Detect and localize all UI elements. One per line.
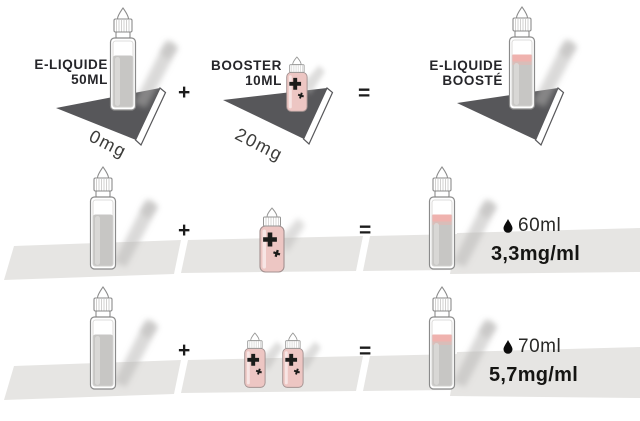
- mix2-volume: 70ml: [503, 336, 561, 358]
- result-label-line1: E-LIQUIDE: [413, 58, 503, 73]
- droplet-icon: [503, 219, 513, 233]
- plus-sign-mix2: +: [178, 341, 190, 361]
- eliquid-label: E-LIQUIDE 50ML: [18, 57, 108, 87]
- mix1-concentration: 3,3mg/ml: [491, 243, 580, 266]
- mix1-volume: 60ml: [503, 215, 561, 237]
- equals-sign-formula: =: [358, 84, 370, 104]
- plus-sign-mix1: +: [178, 221, 190, 241]
- booster-label: BOOSTER 10ML: [192, 58, 282, 88]
- booster-label-line1: BOOSTER: [192, 58, 282, 73]
- eliquid-mixing-infographic: E-LIQUIDE 50ML BOOSTER 10ML E-LIQUIDE BO…: [0, 0, 640, 421]
- booster-label-line2: 10ML: [192, 73, 282, 88]
- mix2-volume-value: 70ml: [518, 336, 561, 358]
- mix2-concentration: 5,7mg/ml: [489, 364, 578, 387]
- boosted-eliquid-bottle: [510, 7, 578, 109]
- eliquid-50ml-bottle: [111, 8, 179, 110]
- result-label-line2: BOOSTÉ: [413, 73, 503, 88]
- mix1-volume-value: 60ml: [518, 215, 561, 237]
- equals-sign-mix2: =: [359, 342, 371, 362]
- eliquid-label-line2: 50ML: [18, 72, 108, 87]
- result-label: E-LIQUIDE BOOSTÉ: [413, 58, 503, 88]
- plus-sign-formula: +: [178, 83, 190, 103]
- equals-sign-mix1: =: [359, 221, 371, 241]
- droplet-icon: [503, 340, 513, 354]
- eliquid-label-line1: E-LIQUIDE: [18, 57, 108, 72]
